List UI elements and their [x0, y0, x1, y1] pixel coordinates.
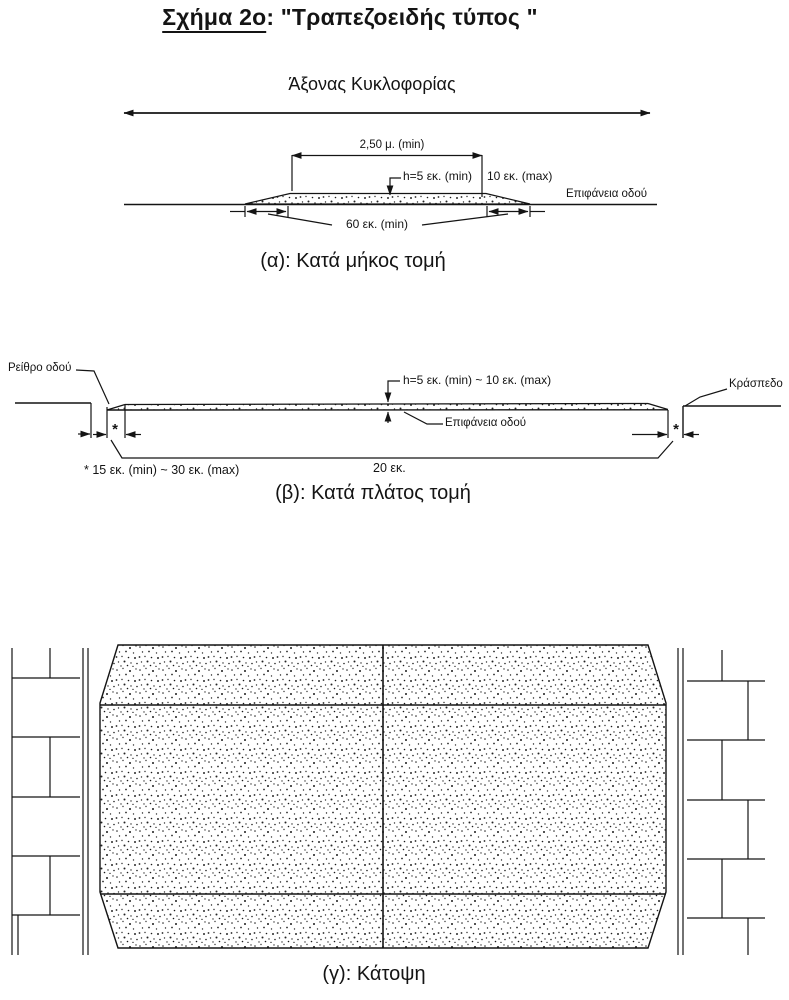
sidewalk-bricks-right — [687, 650, 765, 955]
figure-number: Σχήμα 2ο — [162, 4, 266, 33]
footnote-star-dimension: * 15 εκ. (min) ~ 30 εκ. (max) — [84, 463, 239, 477]
gutter-leader — [76, 370, 109, 404]
star-marker-right: * — [673, 421, 679, 438]
longitudinal-section-drawing — [124, 113, 657, 225]
hump-profile — [245, 194, 530, 205]
dim-height-min-label: h=5 εκ. (min) — [403, 170, 472, 184]
cross-section-drawing — [15, 370, 781, 458]
traffic-axis-label: Άξονας Κυκλοφορίας — [288, 74, 455, 95]
caption-plan-view: (γ): Κάτοψη — [322, 963, 425, 986]
road-surface-label-b: Επιφάνεια οδού — [445, 417, 526, 430]
gutter-lines-right — [678, 648, 683, 955]
leader-line — [422, 214, 508, 225]
curb-leader — [685, 389, 727, 406]
gutter-label: Ρείθρο οδού — [8, 362, 71, 375]
figure-name: : "Τραπεζοειδής τύπος " — [266, 4, 537, 30]
leader-line — [268, 214, 332, 225]
star-marker-left: * — [112, 421, 118, 438]
plan-view-drawing — [12, 645, 765, 955]
road-surface-leader — [404, 412, 443, 424]
road-surface-label-a: Επιφάνεια οδού — [566, 188, 647, 201]
caption-longitudinal-section: (α): Κατά μήκος τομή — [260, 250, 446, 273]
figure-page: Σχήμα 2ο: "Τραπεζοειδής τύπος " Άξονας Κ… — [0, 0, 789, 1000]
height-leader-top — [388, 381, 400, 402]
height-leader — [390, 178, 401, 195]
caption-cross-section: (β): Κατά πλάτος τομή — [275, 482, 471, 505]
dim-ramp-length-label: 60 εκ. (min) — [346, 218, 408, 232]
sidewalk-bricks-left — [12, 648, 80, 955]
dim-top-width-label: 2,50 μ. (min) — [360, 139, 425, 152]
gutter-lines-left — [83, 648, 88, 955]
curb-label: Κράσπεδο — [729, 378, 783, 391]
dim-slab-thickness-label: 20 εκ. — [373, 461, 406, 475]
dim-height-max-label: 10 εκ. (max) — [487, 170, 552, 184]
figure-title: Σχήμα 2ο: "Τραπεζοειδής τύπος " — [162, 4, 538, 30]
dim-height-label-b: h=5 εκ. (min) ~ 10 εκ. (max) — [403, 374, 551, 388]
footnote-bracket — [111, 440, 673, 458]
